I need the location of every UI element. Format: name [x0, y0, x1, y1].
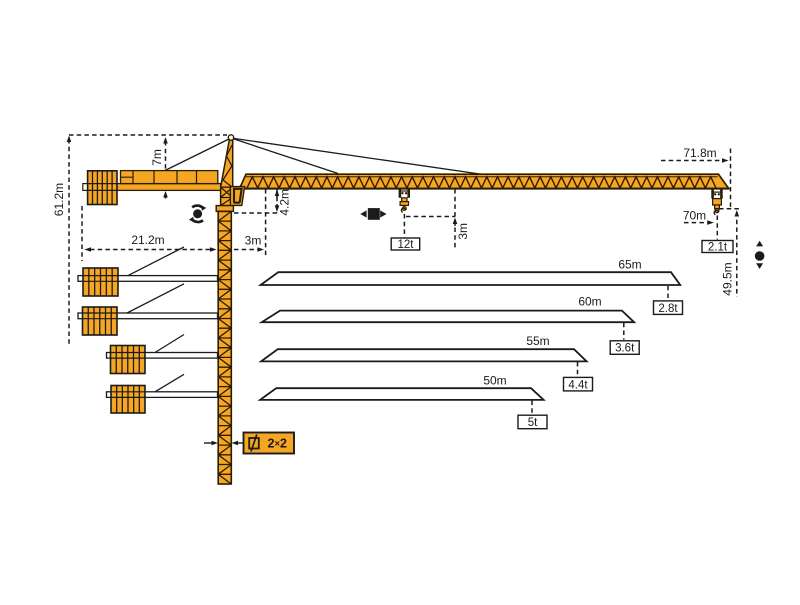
svg-text:7m: 7m — [150, 149, 164, 166]
svg-text:3m: 3m — [456, 223, 470, 240]
svg-text:60m: 60m — [578, 295, 601, 309]
svg-text:65m: 65m — [618, 257, 641, 271]
svg-text:70m: 70m — [683, 209, 706, 223]
svg-text:71.8m: 71.8m — [683, 146, 716, 160]
svg-text:3.6t: 3.6t — [615, 343, 635, 355]
svg-text:4.2m: 4.2m — [278, 189, 292, 216]
svg-text:49.5m: 49.5m — [721, 262, 735, 295]
svg-text:2.8t: 2.8t — [658, 303, 678, 315]
svg-text:55m: 55m — [526, 334, 549, 348]
svg-text:12t: 12t — [398, 239, 415, 251]
svg-text:5t: 5t — [528, 417, 538, 429]
svg-text:50m: 50m — [483, 374, 506, 388]
svg-text:2.1t: 2.1t — [708, 242, 728, 254]
svg-text:3m: 3m — [245, 234, 262, 248]
svg-text:21.2m: 21.2m — [131, 233, 164, 247]
svg-text:2×2: 2×2 — [268, 437, 288, 451]
svg-text:61.2m: 61.2m — [52, 183, 66, 216]
svg-text:4.4t: 4.4t — [568, 379, 588, 391]
